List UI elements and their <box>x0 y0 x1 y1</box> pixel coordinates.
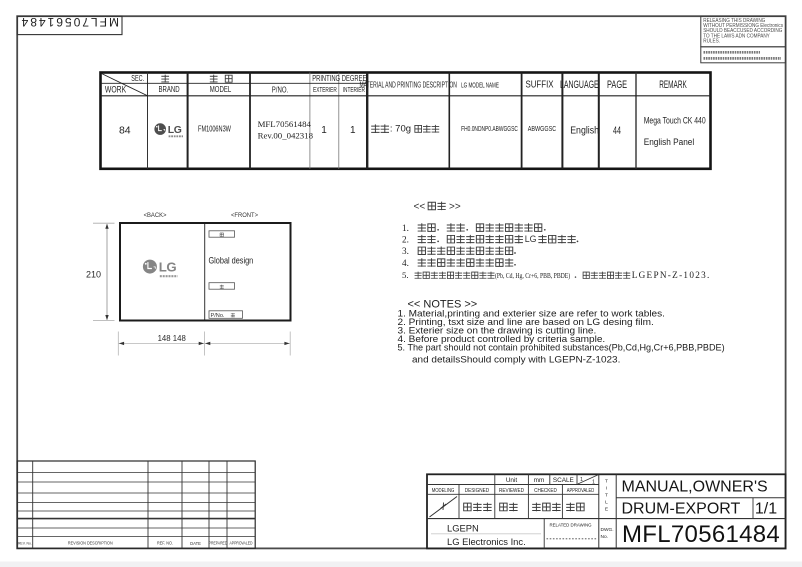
svg-text:E: E <box>605 506 608 512</box>
svg-text:APPROVALED: APPROVALED <box>229 541 252 545</box>
svg-text:REF. NO.: REF. NO. <box>157 540 173 545</box>
svg-text:LG: LG <box>168 125 182 136</box>
svg-text:Unit: Unit <box>506 477 518 484</box>
svg-text:MANUAL,OWNER'S: MANUAL,OWNER'S <box>622 478 768 495</box>
svg-text:CHECKED: CHECKED <box>534 488 557 494</box>
svg-text:WORK: WORK <box>105 84 127 94</box>
svg-text:SEC.: SEC. <box>131 73 144 84</box>
svg-text:<BACK>: <BACK> <box>144 213 167 219</box>
svg-text:PAGE: PAGE <box>607 78 627 90</box>
svg-text:T: T <box>605 492 608 498</box>
svg-text:LG Electronics Inc.: LG Electronics Inc. <box>447 536 526 547</box>
svg-text:(Pb, Cd, Hg, Cr+6, PBB, PBDE): (Pb, Cd, Hg, Cr+6, PBB, PBDE) <box>495 272 570 280</box>
svg-text:2.: 2. <box>402 234 409 244</box>
svg-text:REV. No.: REV. No. <box>18 541 32 545</box>
svg-text:LG: LG <box>159 260 177 275</box>
svg-text:MATERIAL AND PRINTING DESCRIPT: MATERIAL AND PRINTING DESCRIPTION <box>359 81 456 89</box>
svg-text:<<: << <box>414 201 426 212</box>
svg-text:DWG.: DWG. <box>601 527 614 533</box>
svg-text:SCALE: SCALE <box>553 477 574 484</box>
svg-text:P/No.: P/No. <box>211 313 225 319</box>
svg-text:LGEPN: LGEPN <box>447 522 479 533</box>
svg-text:LG: LG <box>525 234 537 244</box>
svg-text:REMARK: REMARK <box>659 78 687 90</box>
svg-text:4.: 4. <box>402 258 409 268</box>
svg-text:PREPARED: PREPARED <box>209 541 228 545</box>
svg-text:Rev.00_042318: Rev.00_042318 <box>258 130 314 140</box>
svg-text:English Panel: English Panel <box>644 137 695 148</box>
svg-text:Global design: Global design <box>209 255 254 266</box>
svg-text:1: 1 <box>321 125 327 136</box>
svg-text:LGEPN-Z-1023.: LGEPN-Z-1023. <box>632 270 711 280</box>
svg-text:MFL70561484: MFL70561484 <box>258 119 312 129</box>
svg-text:MODELING: MODELING <box>432 487 455 492</box>
svg-text:PRINTING DEGREE: PRINTING DEGREE <box>312 73 366 84</box>
svg-text:Mega Touch CK 440: Mega Touch CK 440 <box>644 115 706 125</box>
svg-text:FH0.0NDNP0.ABWGGSC: FH0.0NDNP0.ABWGGSC <box>461 126 518 133</box>
svg-text:44: 44 <box>613 124 621 136</box>
svg-text:LG MODEL NAME: LG MODEL NAME <box>461 81 499 89</box>
svg-text:EXTERIER: EXTERIER <box>313 86 337 94</box>
svg-text:DESIGNED: DESIGNED <box>465 488 490 494</box>
svg-text:mm: mm <box>534 477 545 484</box>
svg-text:P/NO.: P/NO. <box>272 85 288 95</box>
svg-text:210: 210 <box>86 269 101 279</box>
svg-text:RULES.: RULES. <box>703 38 720 44</box>
svg-text:English: English <box>570 124 599 136</box>
svg-text:L: L <box>605 499 608 505</box>
svg-text:BRAND: BRAND <box>158 84 179 94</box>
svg-text:1.: 1. <box>402 223 409 233</box>
svg-text:LANGUAGE: LANGUAGE <box>560 78 599 90</box>
svg-text:RELATED DRAWING: RELATED DRAWING <box>549 522 591 527</box>
svg-text:I: I <box>606 485 607 491</box>
svg-text:>>: >> <box>449 201 461 212</box>
svg-text:REVISION DESCRIPTION: REVISION DESCRIPTION <box>68 540 113 545</box>
svg-text:1: 1 <box>350 125 356 136</box>
svg-text:1/1: 1/1 <box>755 500 777 517</box>
svg-text:<FRONT>: <FRONT> <box>231 213 259 219</box>
svg-text:REVIEWED: REVIEWED <box>499 488 524 494</box>
svg-text:and detailsShould comply with: and detailsShould comply with LGEPN-Z-10… <box>412 355 620 366</box>
svg-text:5. The part should not contain: 5. The part should not contain prohibite… <box>398 342 725 352</box>
svg-text:DATE: DATE <box>190 541 201 546</box>
svg-text:SUFFIX: SUFFIX <box>525 79 553 90</box>
svg-text:1: 1 <box>580 477 583 483</box>
svg-text:APPROVALED: APPROVALED <box>567 487 595 492</box>
svg-text:No.: No. <box>601 534 608 540</box>
svg-text:1: 1 <box>592 480 595 486</box>
svg-text:148 148: 148 148 <box>158 334 186 343</box>
svg-text:FM1006N3W: FM1006N3W <box>198 126 231 134</box>
svg-text:MFL70561484: MFL70561484 <box>622 521 780 548</box>
svg-text:DRUM-EXPORT: DRUM-EXPORT <box>622 500 741 517</box>
svg-text:5.: 5. <box>402 270 409 280</box>
svg-text:MODEL: MODEL <box>210 84 231 94</box>
svg-text:MFL70561484: MFL70561484 <box>20 15 119 29</box>
svg-text:T: T <box>605 478 608 484</box>
svg-text:84: 84 <box>119 124 131 136</box>
svg-text:: 70g: : 70g <box>390 123 411 134</box>
svg-text:3.: 3. <box>402 246 409 256</box>
svg-text:ABWGGSC: ABWGGSC <box>528 125 557 133</box>
